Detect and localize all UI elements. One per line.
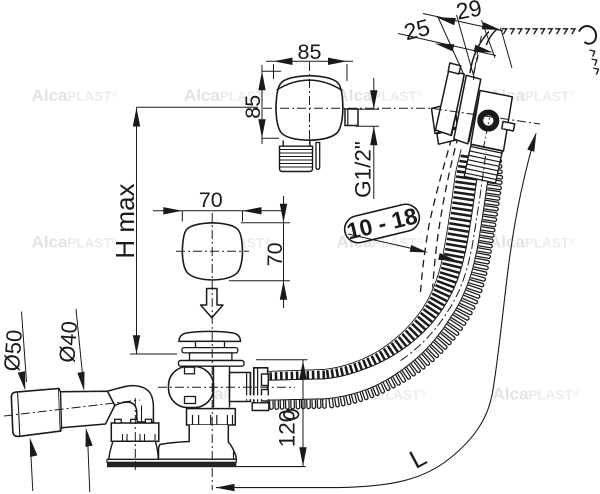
- svg-text:AlcaPLAST®: AlcaPLAST®: [337, 86, 423, 105]
- svg-text:AlcaPLAST®: AlcaPLAST®: [32, 86, 118, 105]
- svg-text:85: 85: [298, 40, 322, 64]
- svg-text:AlcaPLAST®: AlcaPLAST®: [493, 385, 579, 404]
- svg-text:Ø40: Ø40: [54, 320, 82, 363]
- svg-text:70: 70: [263, 242, 287, 266]
- svg-text:G1/2": G1/2": [351, 141, 376, 198]
- svg-text:H max: H max: [110, 183, 140, 258]
- svg-text:70: 70: [199, 188, 223, 212]
- svg-text:AlcaPLAST®: AlcaPLAST®: [32, 233, 118, 252]
- svg-text:85: 85: [241, 95, 265, 119]
- svg-text:Ø50: Ø50: [0, 329, 27, 372]
- svg-text:120: 120: [275, 410, 300, 448]
- svg-text:AlcaPLAST®: AlcaPLAST®: [489, 233, 575, 252]
